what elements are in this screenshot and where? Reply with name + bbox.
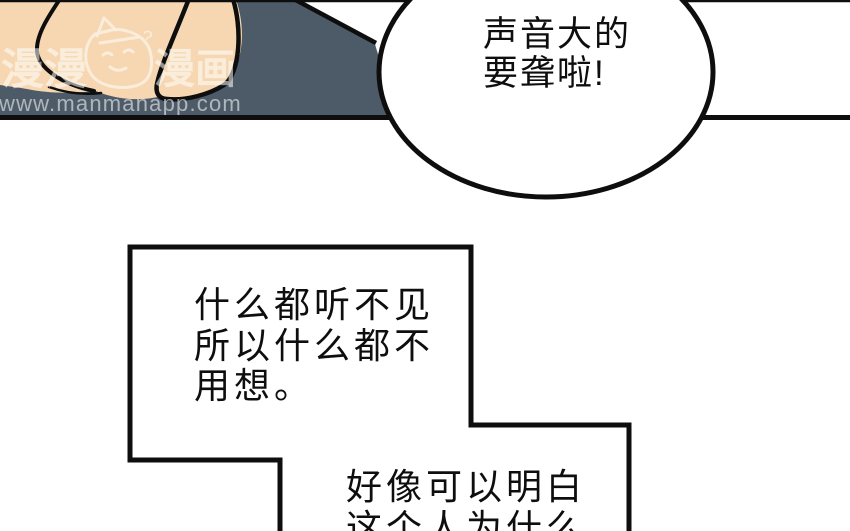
comic-artwork: 漫漫 漫画 www.manmanapp.com ? — [0, 0, 850, 531]
speech-bubble-text: 声音大的 要聋啦! — [483, 15, 631, 93]
watermark-brand-right: 漫画 — [154, 46, 236, 92]
watermark-brand-left: 漫漫 — [1, 46, 87, 94]
watermark-url: www.manmanapp.com — [0, 91, 242, 116]
comic-page: 漫漫 漫画 www.manmanapp.com ? — [0, 0, 850, 531]
thought-box-1-text: 什么都听不见 所以什么都不 用想。 — [194, 285, 434, 407]
thought-box-2-text: 好像可以明白 这个人为什么 — [346, 467, 586, 531]
